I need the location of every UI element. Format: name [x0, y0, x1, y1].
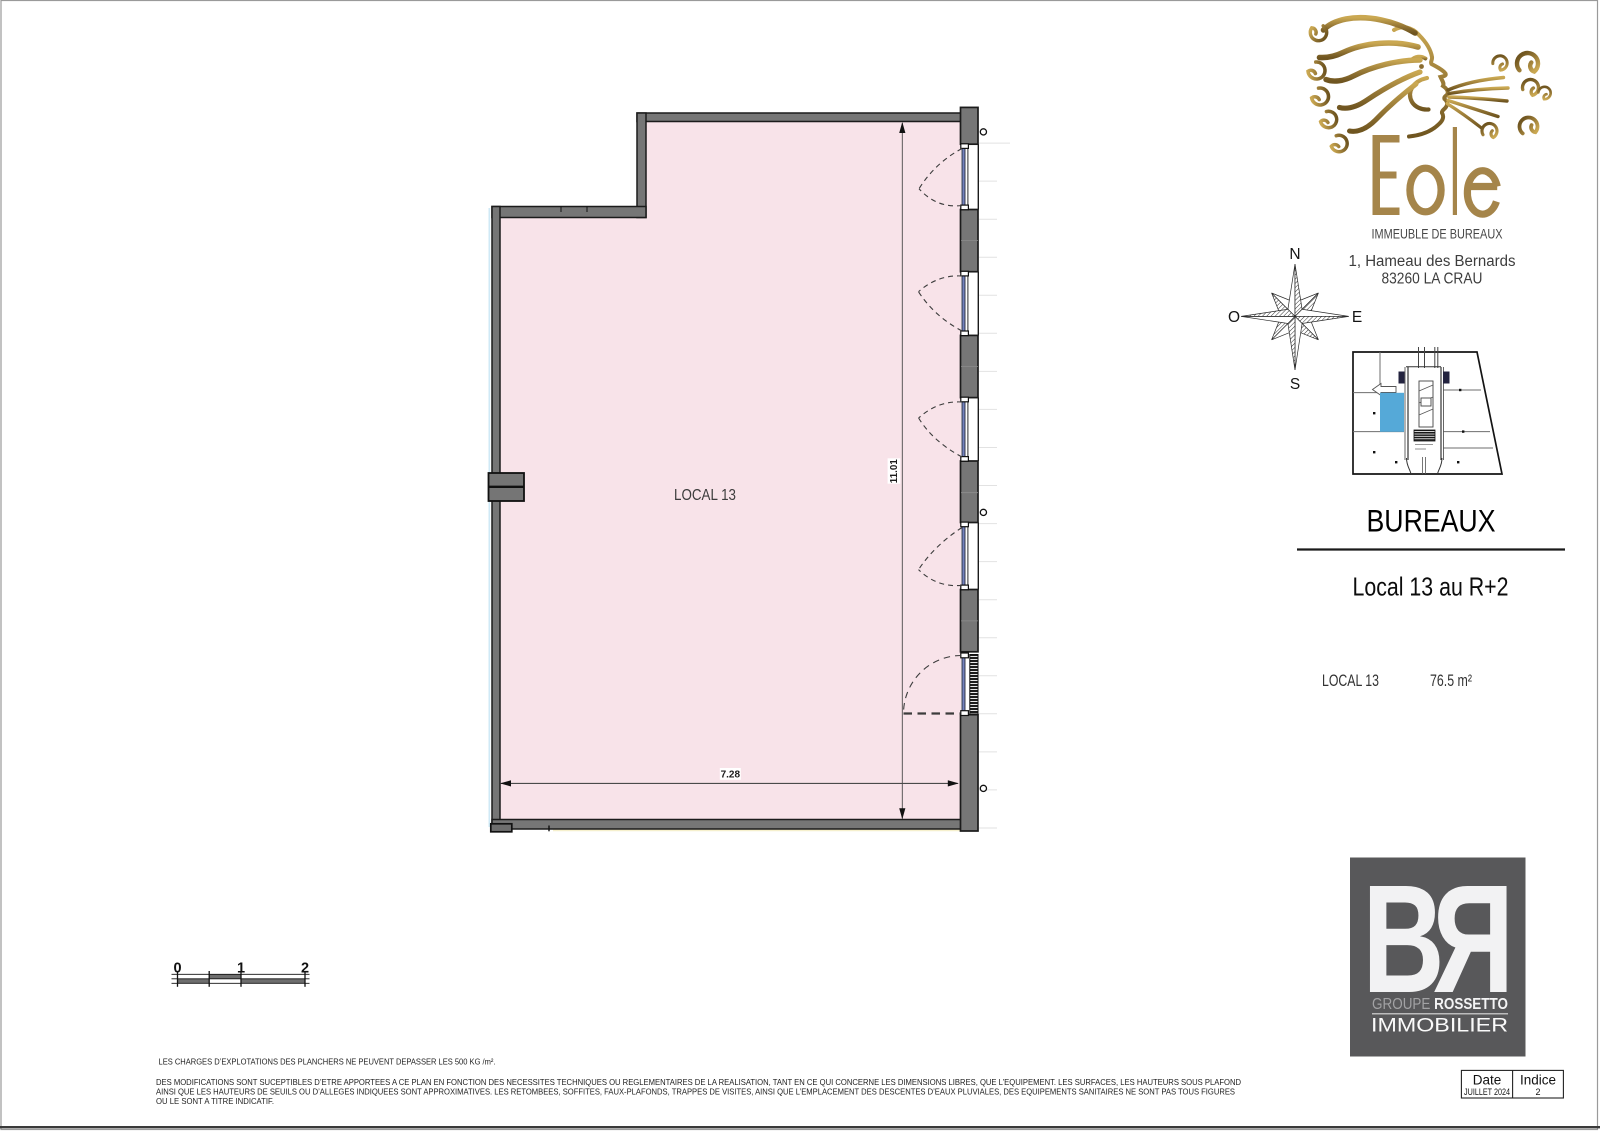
svg-text:LOCAL 13: LOCAL 13 [1322, 672, 1379, 690]
svg-text:11.01: 11.01 [889, 459, 900, 484]
svg-text:DES MODIFICATIONS SONT SUCEPTI: DES MODIFICATIONS SONT SUCEPTIBLES D’ETR… [156, 1077, 1241, 1087]
svg-text:Date: Date [1473, 1073, 1502, 1088]
svg-text:AINSI QUE LES HAUTEURS DE SEUI: AINSI QUE LES HAUTEURS DE SEUILS OU D’AL… [156, 1087, 1235, 1097]
svg-text:E: E [1352, 309, 1362, 326]
svg-text:Indice: Indice [1520, 1073, 1556, 1088]
svg-text:S: S [1290, 376, 1300, 393]
svg-text:N: N [1289, 246, 1300, 263]
svg-text:OU LE SONT A TITRE INDICATIF.: OU LE SONT A TITRE INDICATIF. [156, 1096, 274, 1106]
svg-text:LES CHARGES D’EXPLOTATIONS DES: LES CHARGES D’EXPLOTATIONS DES PLANCHERS… [159, 1056, 496, 1066]
svg-text:BUREAUX: BUREAUX [1367, 503, 1496, 539]
svg-text:2: 2 [1535, 1087, 1540, 1097]
svg-text:1, Hameau des Bernards: 1, Hameau des Bernards [1349, 253, 1516, 270]
svg-text:LOCAL 13: LOCAL 13 [674, 487, 736, 504]
svg-text:76.5 m²: 76.5 m² [1430, 672, 1472, 690]
svg-text:83260 LA CRAU: 83260 LA CRAU [1382, 271, 1483, 288]
svg-text:JUILLET 2024: JUILLET 2024 [1464, 1087, 1510, 1097]
svg-text:IMMEUBLE DE BUREAUX: IMMEUBLE DE BUREAUX [1372, 227, 1503, 242]
svg-text:O: O [1228, 309, 1240, 326]
svg-text:Local 13 au R+2: Local 13 au R+2 [1353, 572, 1509, 602]
svg-text:GROUPE ROSSETTO: GROUPE ROSSETTO [1372, 996, 1508, 1013]
svg-text:IMMOBILIER: IMMOBILIER [1371, 1015, 1508, 1037]
svg-text:7.28: 7.28 [721, 769, 741, 780]
